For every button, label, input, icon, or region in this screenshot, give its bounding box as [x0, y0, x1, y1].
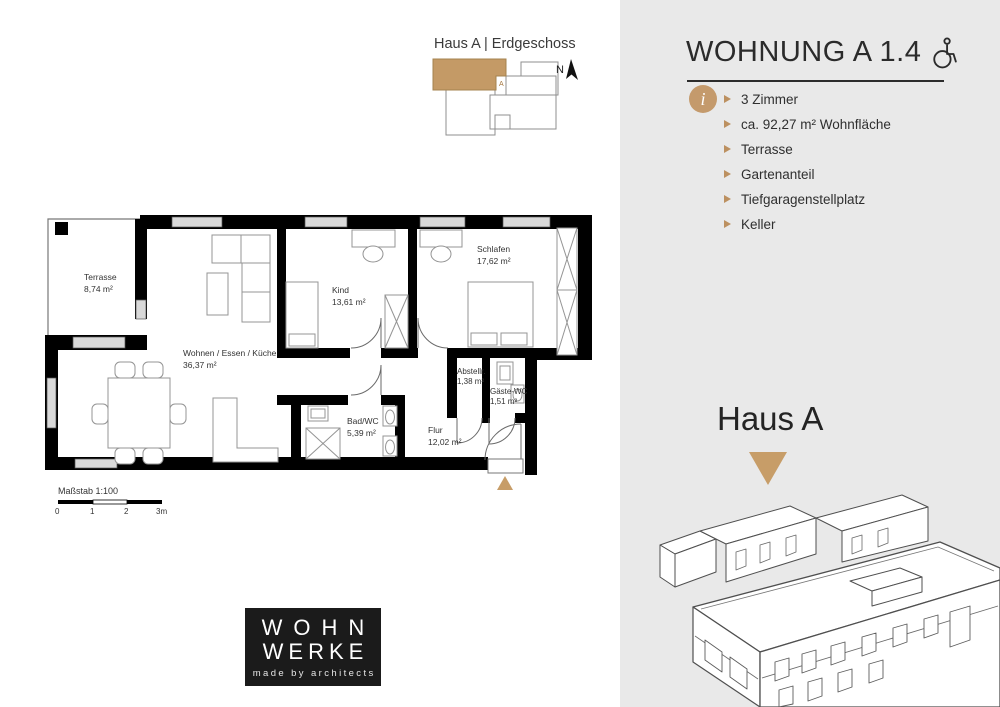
room-area: 13,61 m²: [332, 297, 366, 307]
info-icon: i: [689, 85, 717, 113]
north-arrow-icon: [566, 59, 578, 80]
highlighted-unit-footprint: [433, 59, 506, 90]
feature-item: 3 Zimmer: [724, 92, 891, 108]
room-label: Schlafen: [477, 244, 510, 254]
site-plan-map: A N: [428, 56, 586, 144]
bullet-triangle-icon: [724, 95, 731, 103]
room-label: Gäste-WC: [490, 387, 528, 396]
scale-label: Maßstab 1:100: [58, 486, 118, 496]
wheelchair-icon: [929, 36, 957, 72]
scale-tick: 2: [124, 507, 129, 516]
room-area: 17,62 m²: [477, 256, 511, 266]
feature-label: ca. 92,27 m² Wohnfläche: [741, 117, 891, 133]
room-label: Wohnen / Essen / Küche: [183, 348, 277, 358]
apartment-title: WOHNUNG A 1.4: [686, 36, 921, 69]
buildings-3d-illustration: [620, 470, 1000, 707]
scale-tick: 3m: [156, 507, 167, 516]
title-underline: [687, 80, 944, 82]
feature-list: 3 Zimmer ca. 92,27 m² Wohnfläche Terrass…: [724, 92, 891, 242]
apartment-title-row: WOHNUNG A 1.4: [686, 36, 957, 72]
info-icon-letter: i: [700, 89, 705, 110]
feature-label: Keller: [741, 217, 776, 233]
feature-item: ca. 92,27 m² Wohnfläche: [724, 117, 891, 133]
feature-item: Gartenanteil: [724, 167, 891, 183]
feature-label: Gartenanteil: [741, 167, 815, 183]
house-pointer-triangle-icon: [749, 452, 787, 485]
wohnwerke-logo: WOHN WERKE made by architects: [245, 608, 381, 686]
apartment-datasheet-page: WOHNUNG A 1.4 i 3 Zimmer ca. 92,27 m² Wo…: [0, 0, 1000, 707]
room-label: Flur: [428, 425, 443, 435]
feature-item: Tiefgaragenstellplatz: [724, 192, 891, 208]
floor-plan: Terrasse 8,74 m² Wohnen / Essen / Küche …: [40, 205, 600, 517]
room-area: 1,51 m²: [490, 397, 517, 406]
bullet-triangle-icon: [724, 145, 731, 153]
room-area: 1,38 m²: [457, 377, 484, 386]
scale-bar: Maßstab 1:100 0 1 2 3m: [55, 486, 167, 516]
site-plan-title: Haus A | Erdgeschoss: [434, 36, 586, 52]
logo-tagline: made by architects: [253, 668, 376, 679]
bullet-triangle-icon: [724, 120, 731, 128]
room-area: 36,37 m²: [183, 360, 217, 370]
room-label: Kind: [332, 285, 349, 295]
room-label: Abstellr.: [457, 367, 485, 376]
logo-line-1: WOHN: [262, 616, 376, 640]
room-label: Bad/WC: [347, 416, 379, 426]
bullet-triangle-icon: [724, 170, 731, 178]
north-label: N: [556, 64, 564, 76]
bullet-triangle-icon: [724, 220, 731, 228]
room-area: 12,02 m²: [428, 437, 462, 447]
house-heading: Haus A: [717, 400, 823, 438]
bullet-triangle-icon: [724, 195, 731, 203]
room-area: 5,39 m²: [347, 428, 376, 438]
feature-item: Terrasse: [724, 142, 891, 158]
info-panel: WOHNUNG A 1.4 i 3 Zimmer ca. 92,27 m² Wo…: [620, 0, 1000, 707]
logo-line-2: WERKE: [263, 640, 369, 664]
scale-tick: 0: [55, 507, 60, 516]
unit-letter: A: [499, 81, 504, 88]
feature-label: 3 Zimmer: [741, 92, 798, 108]
room-area: 8,74 m²: [84, 284, 113, 294]
entrance-triangle-icon: [497, 476, 513, 490]
room-label: Terrasse: [84, 272, 117, 282]
feature-item: Keller: [724, 217, 891, 233]
scale-tick: 1: [90, 507, 95, 516]
feature-label: Tiefgaragenstellplatz: [741, 192, 865, 208]
feature-label: Terrasse: [741, 142, 793, 158]
site-plan: Haus A | Erdgeschoss A N: [428, 36, 586, 149]
